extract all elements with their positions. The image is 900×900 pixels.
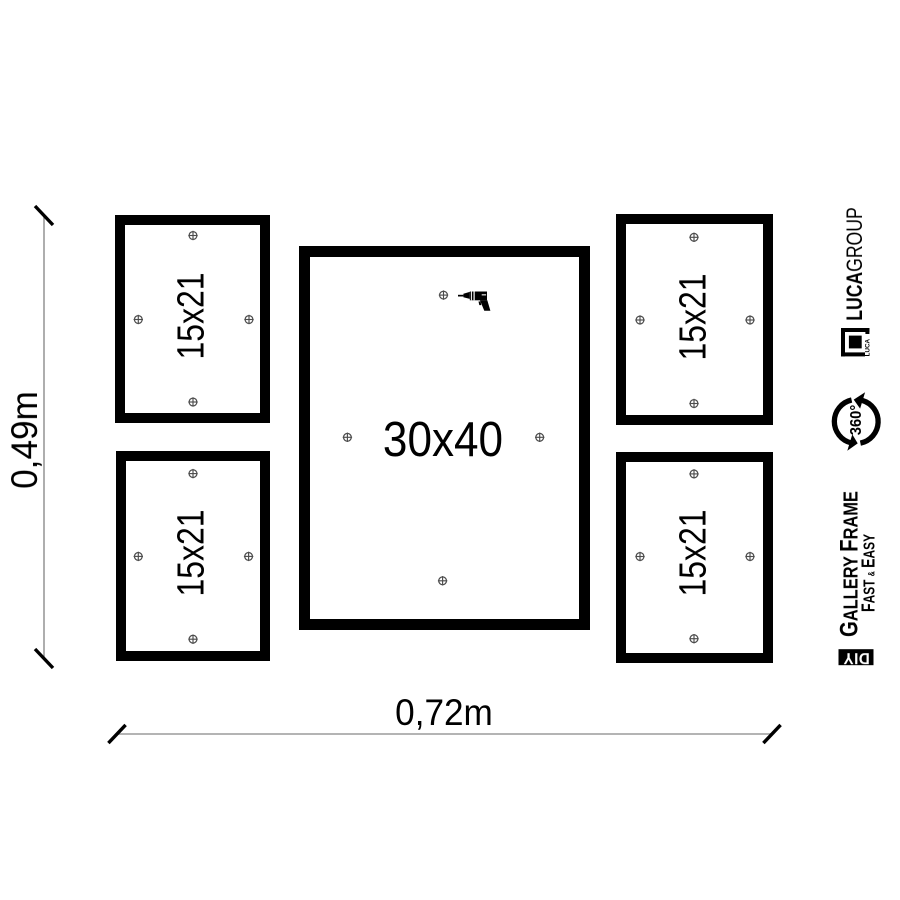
svg-text:LUCA: LUCA [864,338,871,356]
svg-text:360°: 360° [847,405,865,435]
